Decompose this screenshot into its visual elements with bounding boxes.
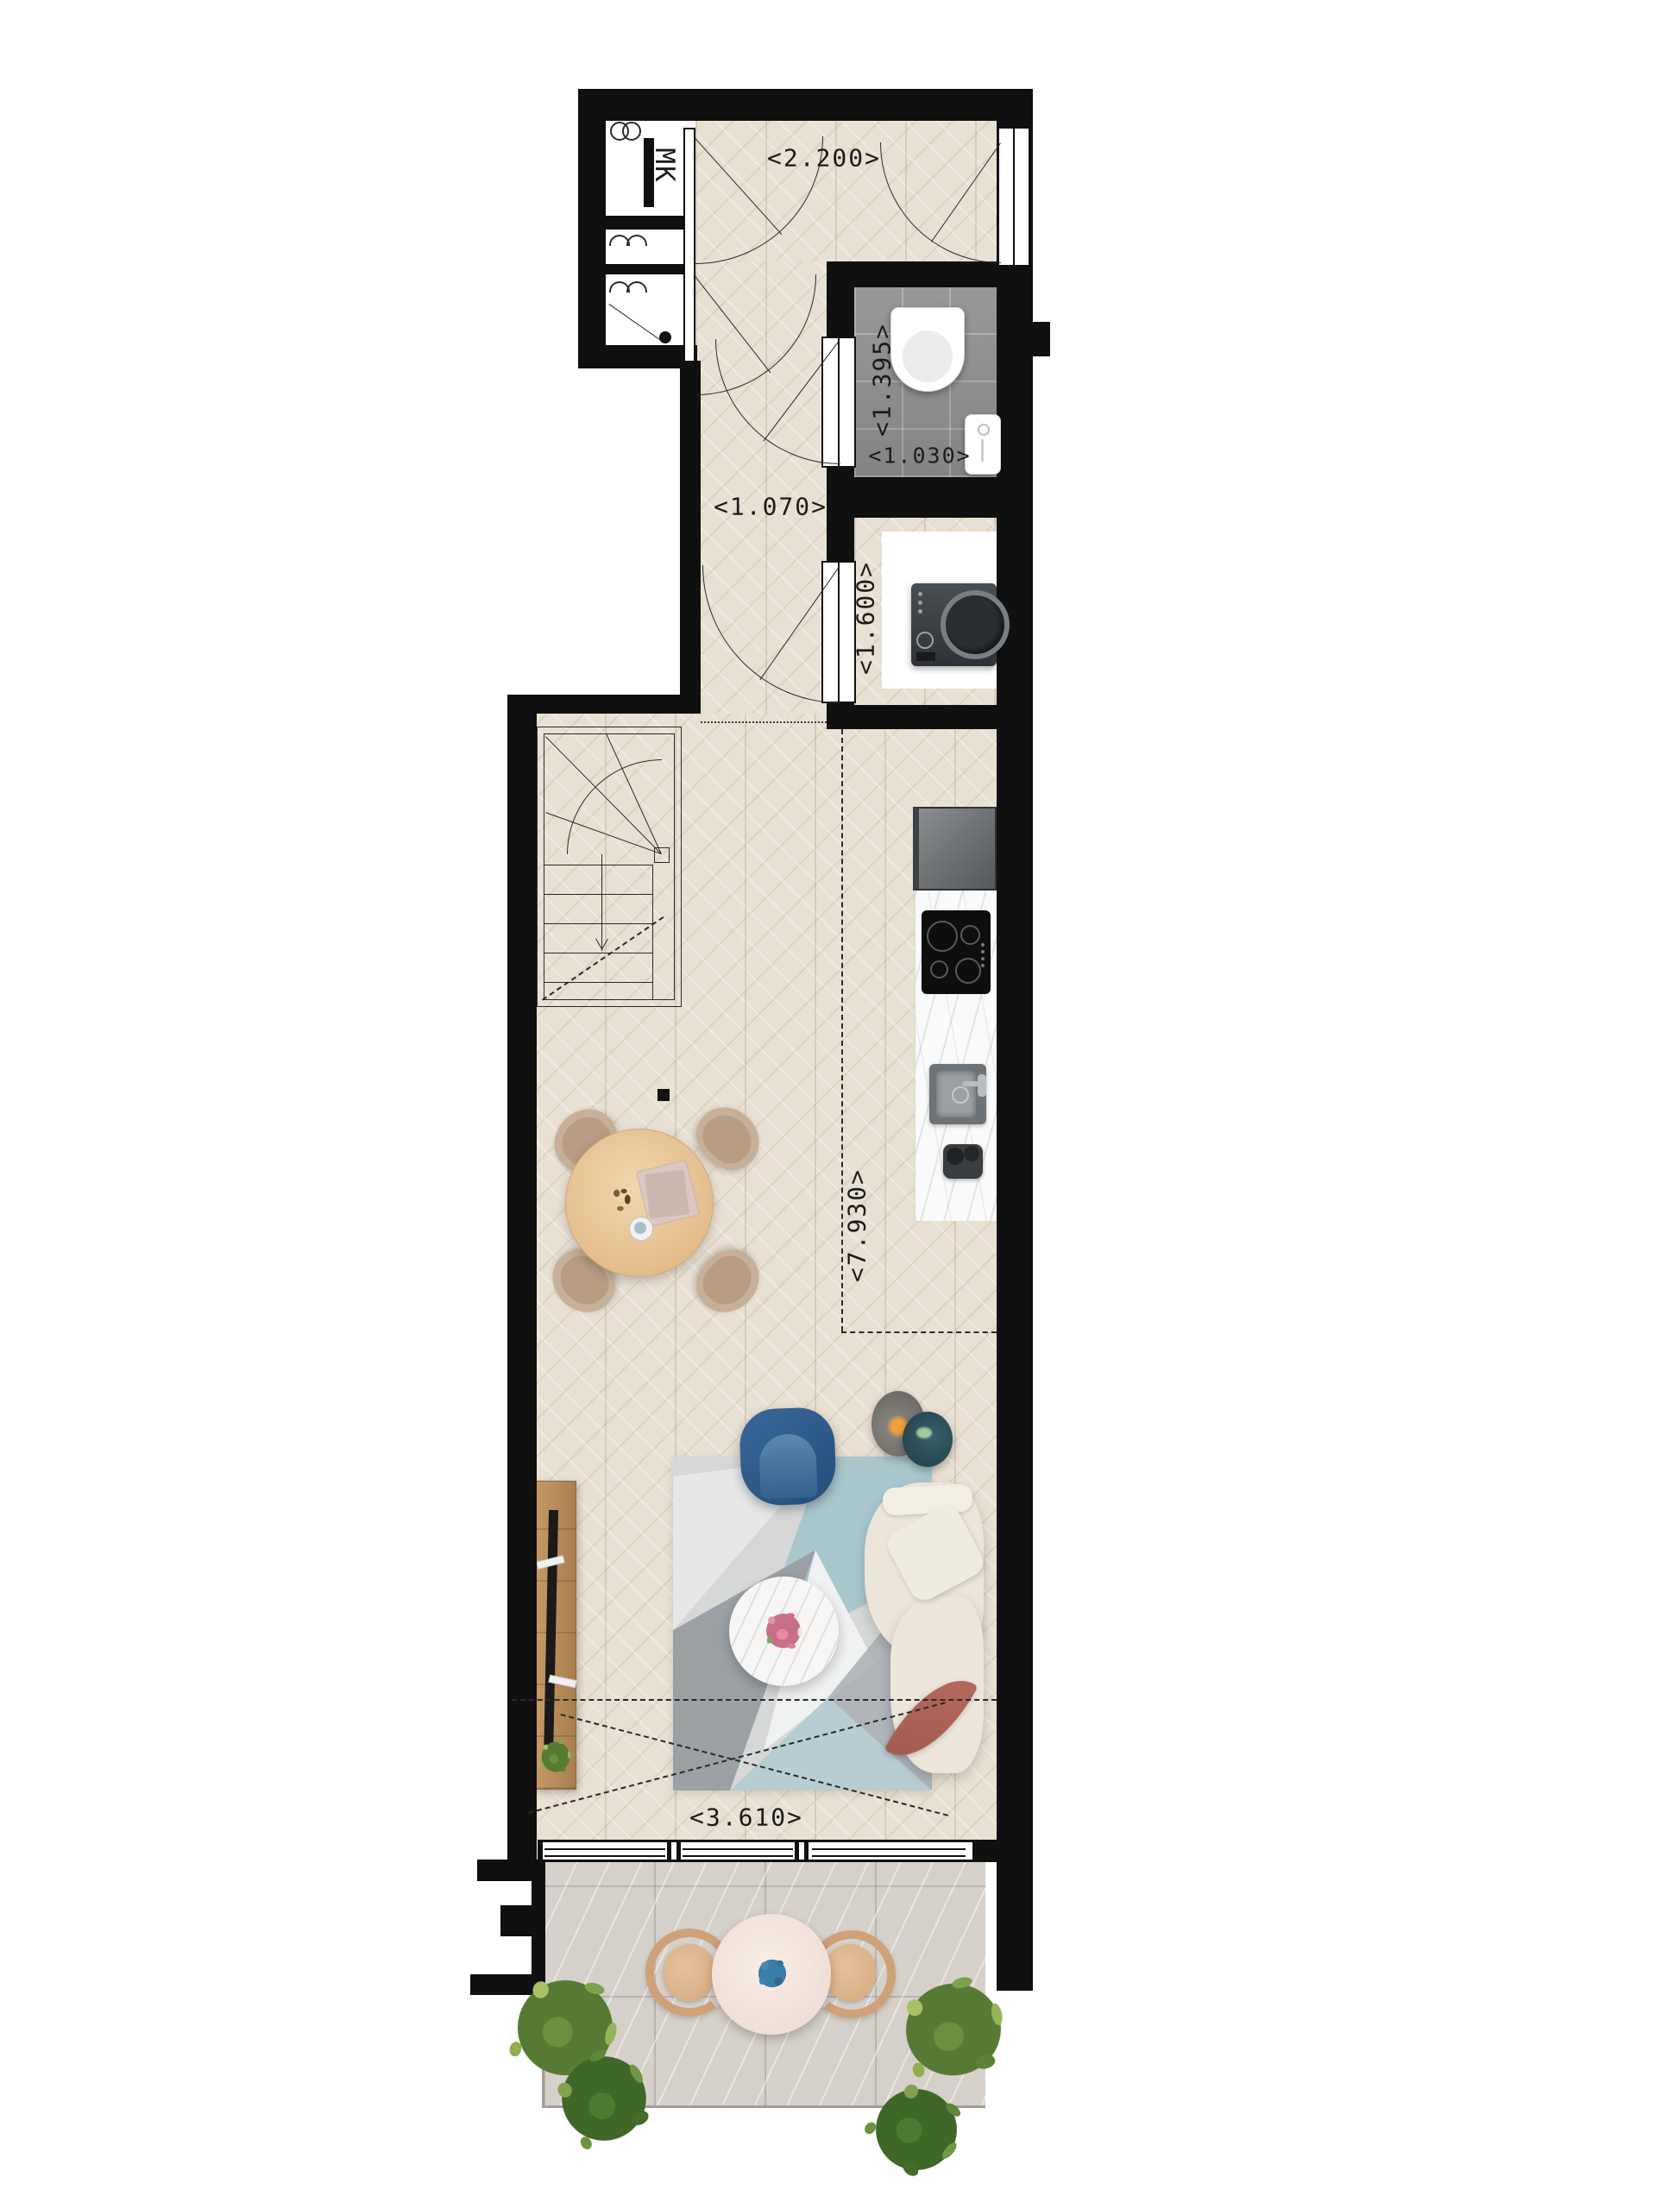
toilet-fixture	[890, 307, 965, 392]
meter-symbol	[622, 122, 641, 141]
balcony-left-tooth	[477, 1860, 532, 1881]
window-band	[538, 1840, 978, 1862]
mk-door-line	[683, 128, 695, 362]
laundry-bottom-wall	[827, 705, 999, 729]
sideboard-plant	[533, 1733, 578, 1781]
radiator-symbol	[626, 281, 647, 293]
wc-laundry-wall	[827, 477, 999, 518]
label-hall-width: <1.070>	[714, 493, 827, 521]
pivot-door-line	[608, 304, 661, 341]
label-wc-depth: <1.395>	[868, 323, 897, 437]
winder-stairs	[537, 727, 682, 1007]
right-wall-stub	[1033, 322, 1050, 356]
wall-left-closet	[578, 89, 606, 368]
cup	[629, 1217, 653, 1241]
fridge	[913, 807, 997, 891]
label-laundry-width: <1.600>	[852, 561, 880, 675]
sofa-pillow	[882, 1483, 973, 1515]
wall-top	[578, 89, 1031, 121]
closet-divider	[606, 264, 683, 274]
closet-divider	[606, 216, 683, 230]
napkin	[645, 1169, 689, 1218]
label-wc-width: <1.030>	[868, 444, 971, 469]
floor-plan-canvas: MK <2.200> <1.395> <1.030> <1.070> <1.60…	[0, 0, 1680, 2209]
section-line	[512, 1699, 997, 1701]
living-left-wall	[507, 695, 537, 1861]
kitchen-zone-line-h	[841, 1331, 997, 1333]
label-living-width: <3.610>	[689, 1803, 803, 1832]
label-living-length: <7.930>	[843, 1168, 871, 1282]
table-plant-blue	[747, 1948, 797, 1998]
washing-machine	[911, 583, 997, 666]
hall-left-wall	[680, 361, 701, 714]
blue-armchair	[739, 1407, 837, 1507]
floor-lamp-shade-2	[903, 1412, 953, 1467]
ceiling-break-line	[701, 721, 827, 723]
label-entry-width: <2.200>	[767, 144, 881, 173]
balcony-left-tooth	[500, 1905, 532, 1936]
window-right-wall	[978, 1840, 998, 1862]
pivot-door-dot	[659, 331, 671, 343]
induction-cooktop	[922, 910, 991, 994]
stair-walk-line	[601, 854, 602, 951]
table-sprig	[604, 1179, 640, 1220]
wall-right	[997, 89, 1033, 1991]
flower-bouquet	[754, 1602, 813, 1660]
label-meter-closet: MK	[649, 148, 680, 183]
kitchen-sink	[929, 1064, 986, 1124]
floor-outlet-symbol	[658, 1089, 670, 1101]
coffee-machine	[943, 1144, 983, 1179]
front-door-frame	[997, 127, 1030, 267]
balcony-chair-left-seat	[663, 1944, 716, 2001]
balcony-chair-right-seat	[823, 1944, 877, 2001]
radiator-symbol	[626, 235, 647, 246]
wc-top-wall	[827, 261, 999, 287]
